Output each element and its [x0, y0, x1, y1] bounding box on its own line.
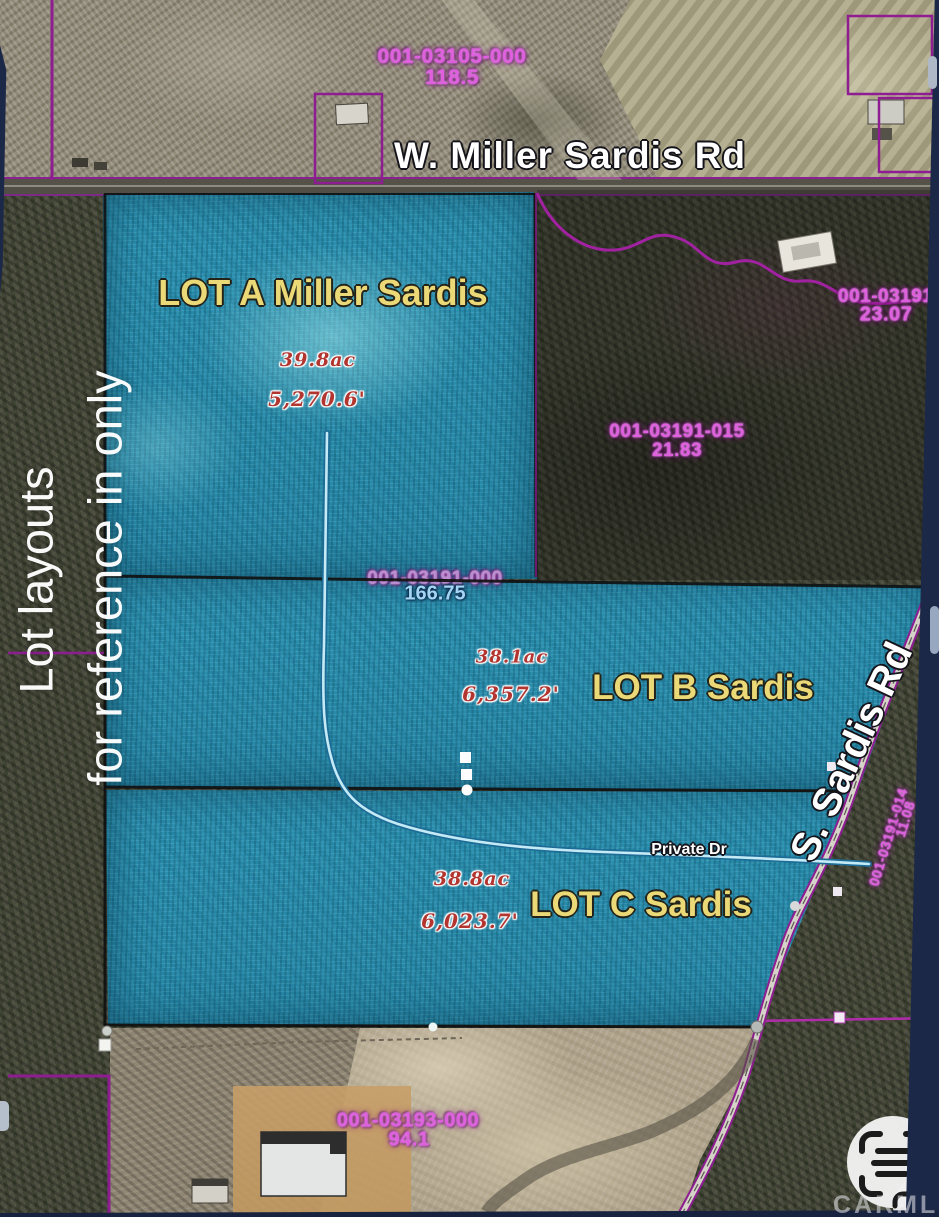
aerial-lot-map: 001-03191-000: [0, 0, 939, 1217]
scrollbar-thumb-top[interactable]: [928, 56, 937, 89]
carmls-watermark-text: CARMLS: [833, 1191, 939, 1217]
scrollbar-thumb-mid[interactable]: [930, 606, 939, 654]
edge-highlight: [0, 1101, 9, 1131]
carmls-logo: [0, 0, 939, 1217]
